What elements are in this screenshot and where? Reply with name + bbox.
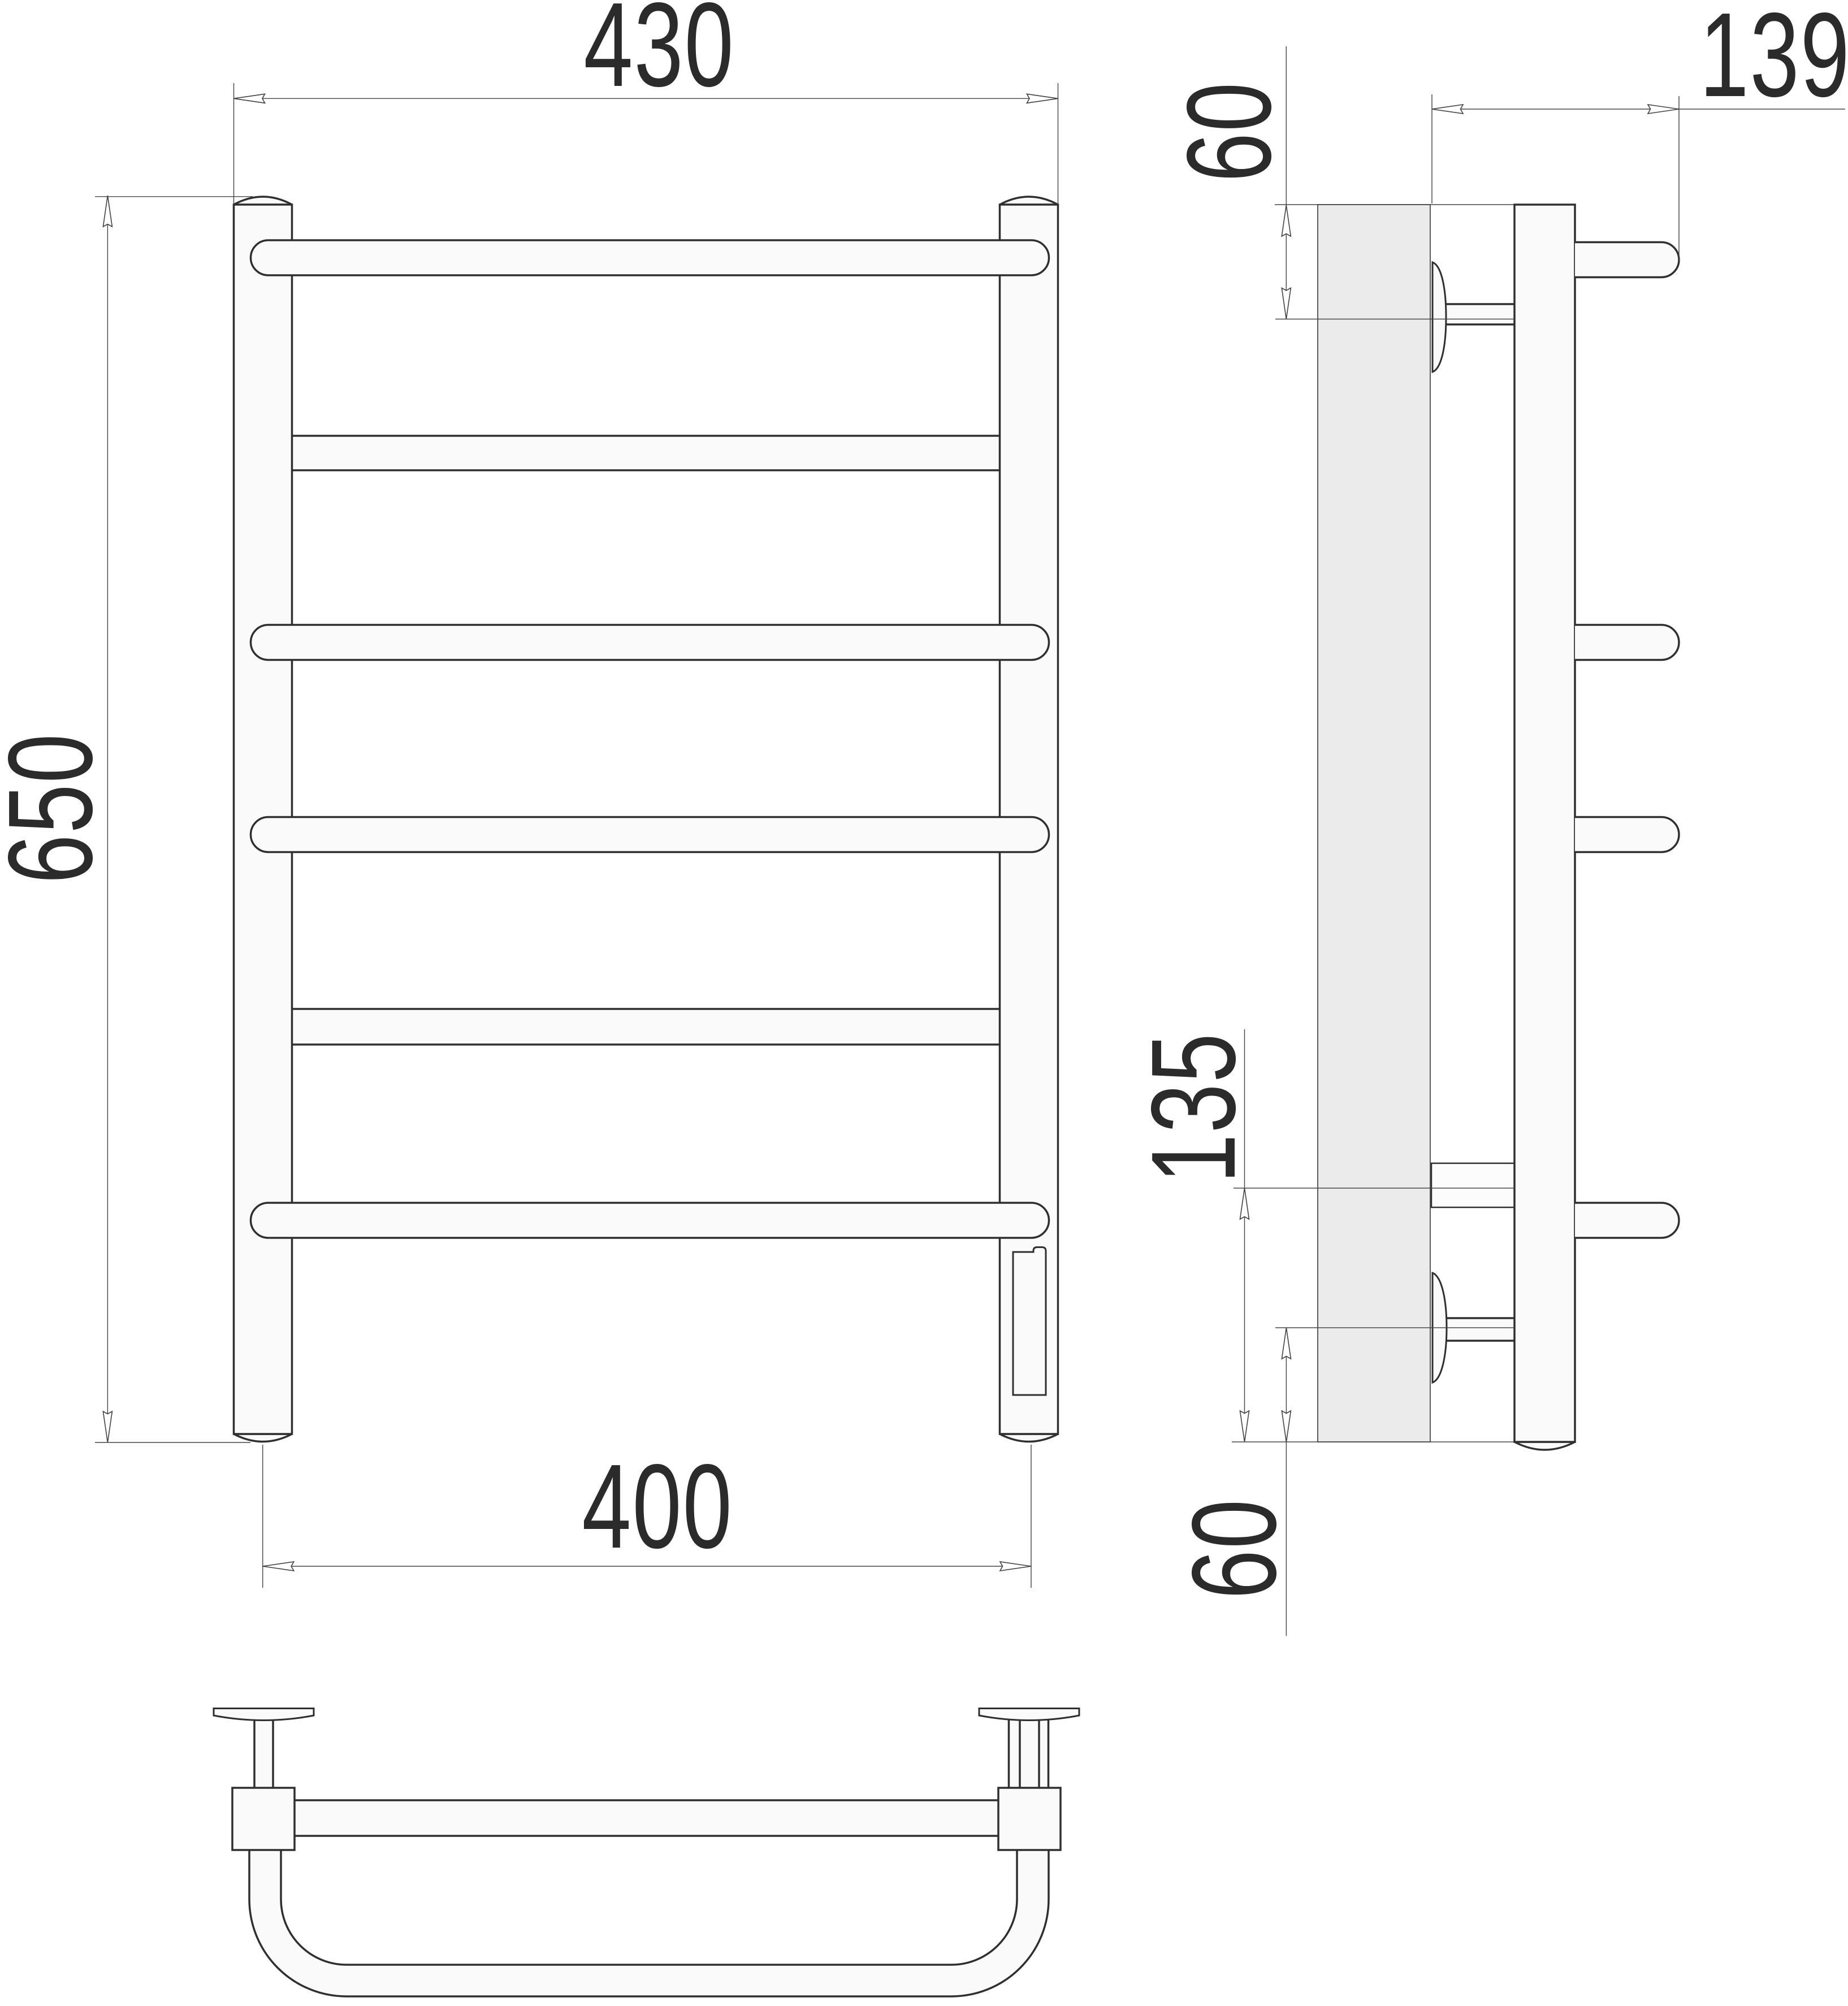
- svg-text:400: 400: [582, 1439, 733, 1574]
- svg-text:60: 60: [1167, 1498, 1301, 1599]
- svg-text:139: 139: [1699, 0, 1848, 122]
- svg-text:60: 60: [1162, 81, 1296, 182]
- svg-text:135: 135: [1126, 1032, 1261, 1183]
- svg-text:430: 430: [583, 0, 734, 111]
- svg-text:650: 650: [0, 733, 117, 883]
